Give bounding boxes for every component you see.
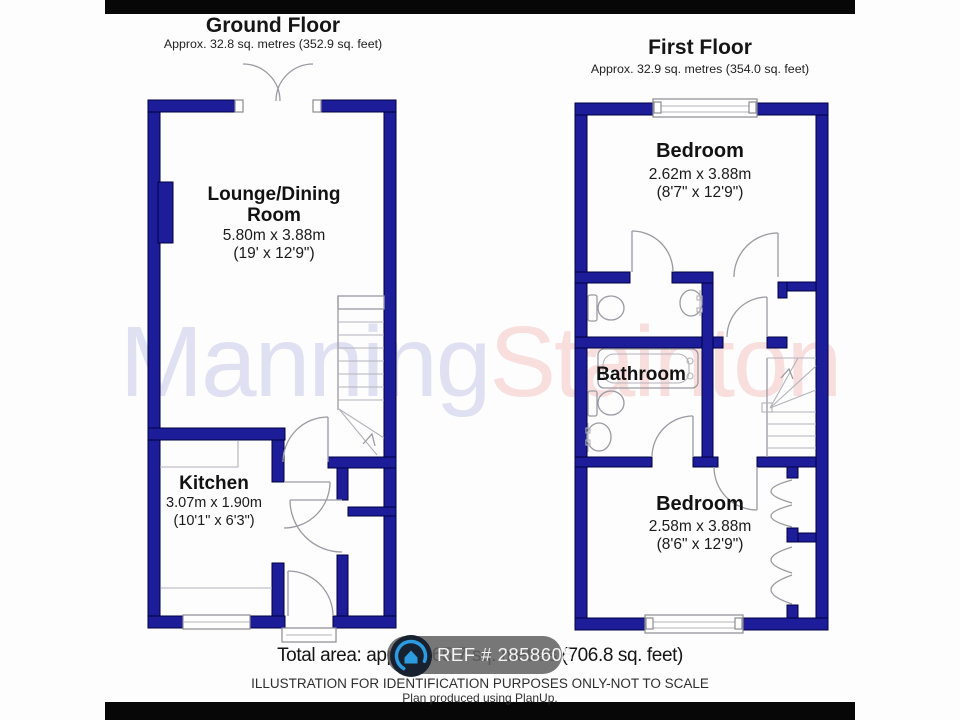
back-bedroom-label: Bedroom xyxy=(656,493,744,515)
floorplan-page: ManningStainton Ground Floor Approx. 32.… xyxy=(0,0,960,720)
ground-floor-plan: Lounge/Dining Room 5.80m x 3.88m (19' x … xyxy=(140,55,406,655)
disclaimer-text: ILLUSTRATION FOR IDENTIFICATION PURPOSES… xyxy=(0,676,960,691)
ground-floor-area-subtitle: Approx. 32.8 sq. metres (352.9 sq. feet) xyxy=(133,37,413,51)
wc-basin xyxy=(680,290,702,316)
first-floor-plan: Bedroom 2.62m x 3.88m (8'7" x 12'9") Bat… xyxy=(568,90,836,650)
kitchen-door xyxy=(284,482,330,528)
front-door xyxy=(282,571,336,642)
landing-door xyxy=(734,233,778,277)
kitchen-label: Kitchen xyxy=(179,473,249,494)
front-bedroom-dimensions-metric: 2.62m x 3.88m xyxy=(649,166,752,183)
reference-number: REF # 2858608 xyxy=(437,644,557,666)
front-bedroom-window xyxy=(653,99,757,117)
wc-door xyxy=(727,297,767,337)
lounge-dimensions-metric: 5.80m x 3.88m xyxy=(223,227,326,244)
kitchen-dimensions-imperial: (10'1" x 6'3") xyxy=(173,513,254,529)
lounge-label-line2: Room xyxy=(247,205,301,226)
agency-logo-icon xyxy=(389,634,433,678)
front-bedroom-door xyxy=(632,231,673,272)
bathroom-basin xyxy=(586,423,611,452)
front-bedroom-dimensions-imperial: (8'7" x 12'9") xyxy=(657,184,744,201)
lounge-door xyxy=(283,417,328,462)
ground-floor-walls xyxy=(148,100,396,628)
bathroom-door xyxy=(652,416,693,457)
front-bedroom-label: Bedroom xyxy=(656,140,744,162)
letterbox-bar-top xyxy=(105,0,855,14)
back-bedroom-window xyxy=(645,615,743,633)
staircase-first-floor xyxy=(762,358,816,457)
back-bedroom-dimensions-imperial: (8'6" x 12'9") xyxy=(657,536,744,553)
first-floor-title: First Floor xyxy=(575,36,825,60)
ground-floor-labels: Lounge/Dining Room 5.80m x 3.88m (19' x … xyxy=(166,184,340,529)
produced-by-text: Plan produced using PlanUp. xyxy=(0,691,960,705)
kitchen-dimensions-metric: 3.07m x 1.90m xyxy=(166,495,262,511)
wc-toilet xyxy=(588,295,624,321)
staircase xyxy=(338,296,384,455)
ground-floor-title: Ground Floor xyxy=(148,14,398,38)
reference-badge: REF # 2858608 xyxy=(387,636,562,674)
bathroom-toilet xyxy=(588,391,624,416)
bathroom-label: Bathroom xyxy=(596,364,686,385)
lounge-label-line1: Lounge/Dining xyxy=(208,184,341,205)
first-floor-area-subtitle: Approx. 32.9 sq. metres (354.0 sq. feet) xyxy=(560,62,840,76)
french-doors xyxy=(235,64,321,112)
back-bedroom-dimensions-metric: 2.58m x 3.88m xyxy=(649,518,752,535)
kitchen-counter xyxy=(160,441,238,467)
lounge-dimensions-imperial: (19' x 12'9") xyxy=(233,245,314,262)
